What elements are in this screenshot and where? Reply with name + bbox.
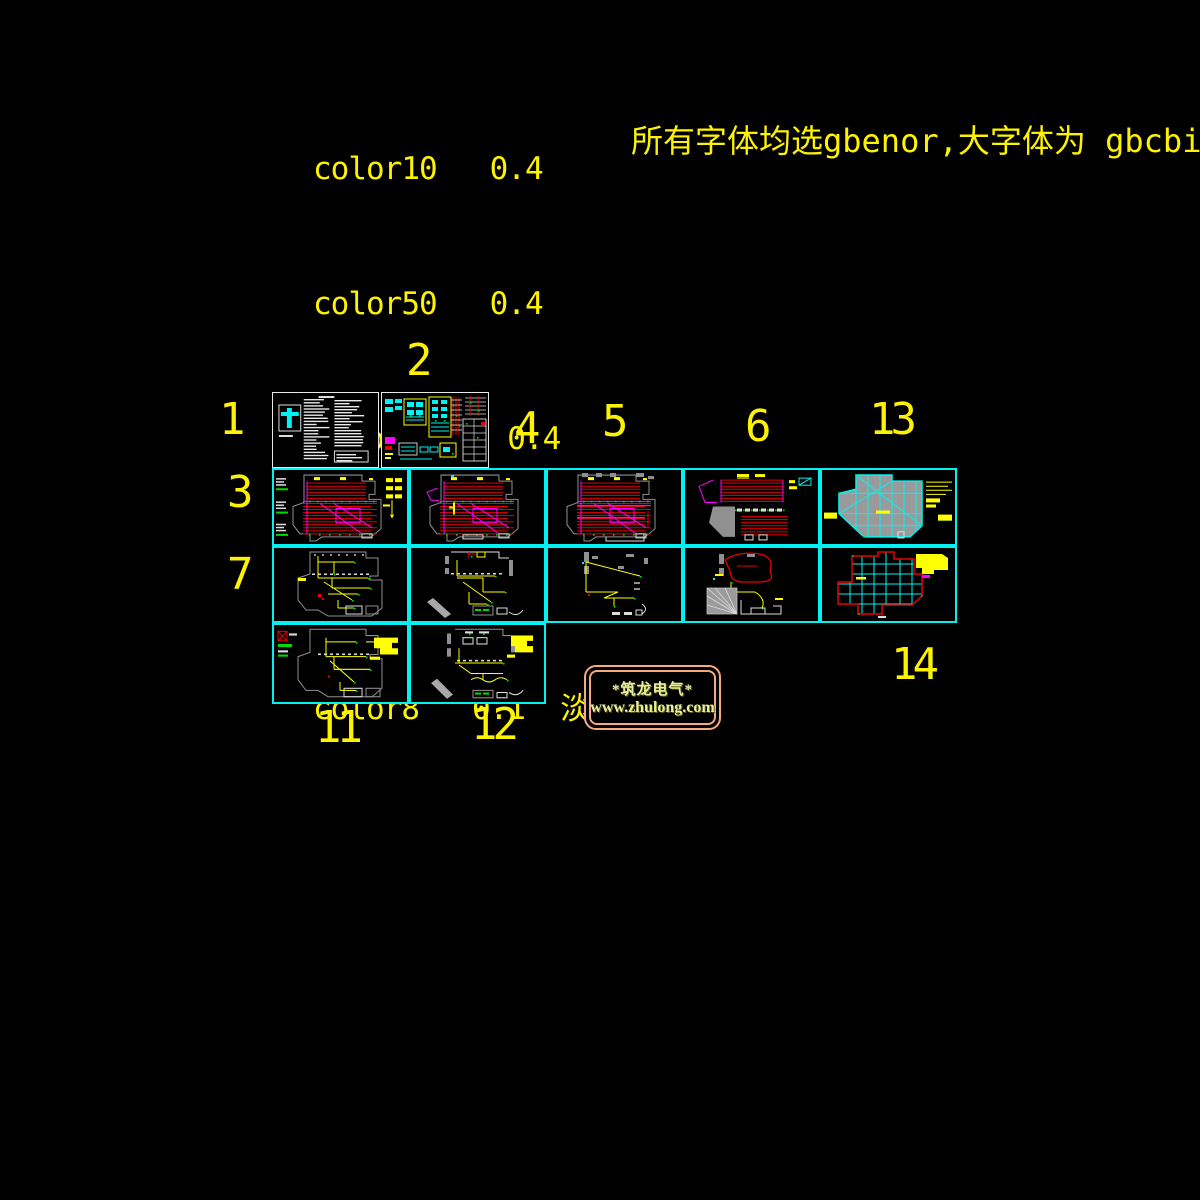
drawing-thumbnail-8 bbox=[411, 548, 544, 621]
pen-note-line-2: color50 0.4 bbox=[313, 282, 691, 327]
figure-label-7: 7 bbox=[227, 553, 249, 597]
drawing-panel-11[interactable] bbox=[272, 623, 409, 704]
drawing-panel-5[interactable] bbox=[546, 468, 683, 546]
figure-label-1: 1 bbox=[219, 398, 241, 442]
drawing-panel-13[interactable] bbox=[820, 468, 957, 546]
drawing-thumbnail-1 bbox=[273, 393, 378, 467]
drawing-thumbnail-2 bbox=[382, 393, 488, 467]
drawing-panel-9[interactable] bbox=[546, 546, 683, 623]
figure-label-13: 13 bbox=[869, 398, 912, 442]
watermark-brand-text: *筑龙电气* bbox=[612, 678, 693, 699]
drawing-thumbnail-5 bbox=[548, 470, 681, 544]
drawing-panel-2[interactable] bbox=[381, 392, 489, 468]
cad-model-space: color10 0.4 color50 0.4 color130 0.4 col… bbox=[0, 0, 1200, 1200]
figure-label-5: 5 bbox=[602, 400, 624, 444]
drawing-thumbnail-14 bbox=[822, 548, 955, 621]
drawing-thumbnail-9 bbox=[548, 548, 681, 621]
drawing-thumbnail-10 bbox=[685, 548, 818, 621]
figure-label-2: 2 bbox=[406, 339, 428, 383]
drawing-panel-4[interactable] bbox=[409, 468, 546, 546]
figure-label-11: 11 bbox=[315, 706, 358, 750]
drawing-thumbnail-6 bbox=[685, 470, 818, 544]
drawing-thumbnail-12 bbox=[411, 625, 544, 702]
figure-label-4: 4 bbox=[514, 407, 536, 451]
figure-label-3: 3 bbox=[227, 471, 249, 515]
figure-label-14: 14 bbox=[891, 643, 934, 687]
figure-label-6: 6 bbox=[745, 405, 767, 449]
drawing-thumbnail-7 bbox=[274, 548, 407, 621]
watermark-url-text: www.zhulong.com bbox=[590, 699, 714, 717]
drawing-panel-12[interactable] bbox=[409, 623, 546, 704]
drawing-panel-1[interactable] bbox=[272, 392, 379, 468]
drawing-thumbnail-3 bbox=[274, 470, 407, 544]
drawing-panel-8[interactable] bbox=[409, 546, 546, 623]
zhulong-watermark: *筑龙电气* www.zhulong.com bbox=[584, 665, 721, 730]
figure-label-12: 12 bbox=[471, 703, 514, 747]
drawing-panel-10[interactable] bbox=[683, 546, 820, 623]
drawing-panel-14[interactable] bbox=[820, 546, 957, 623]
zhulong-watermark-frame: *筑龙电气* www.zhulong.com bbox=[589, 670, 716, 725]
drawing-panel-3[interactable] bbox=[272, 468, 409, 546]
font-selection-note: 所有字体均选gbenor,大字体为 gbcbig bbox=[631, 116, 1200, 162]
drawing-panel-7[interactable] bbox=[272, 546, 409, 623]
drawing-panel-6[interactable] bbox=[683, 468, 820, 546]
drawing-thumbnail-13 bbox=[822, 470, 955, 544]
drawing-thumbnail-11 bbox=[274, 625, 407, 702]
drawing-thumbnail-4 bbox=[411, 470, 544, 544]
